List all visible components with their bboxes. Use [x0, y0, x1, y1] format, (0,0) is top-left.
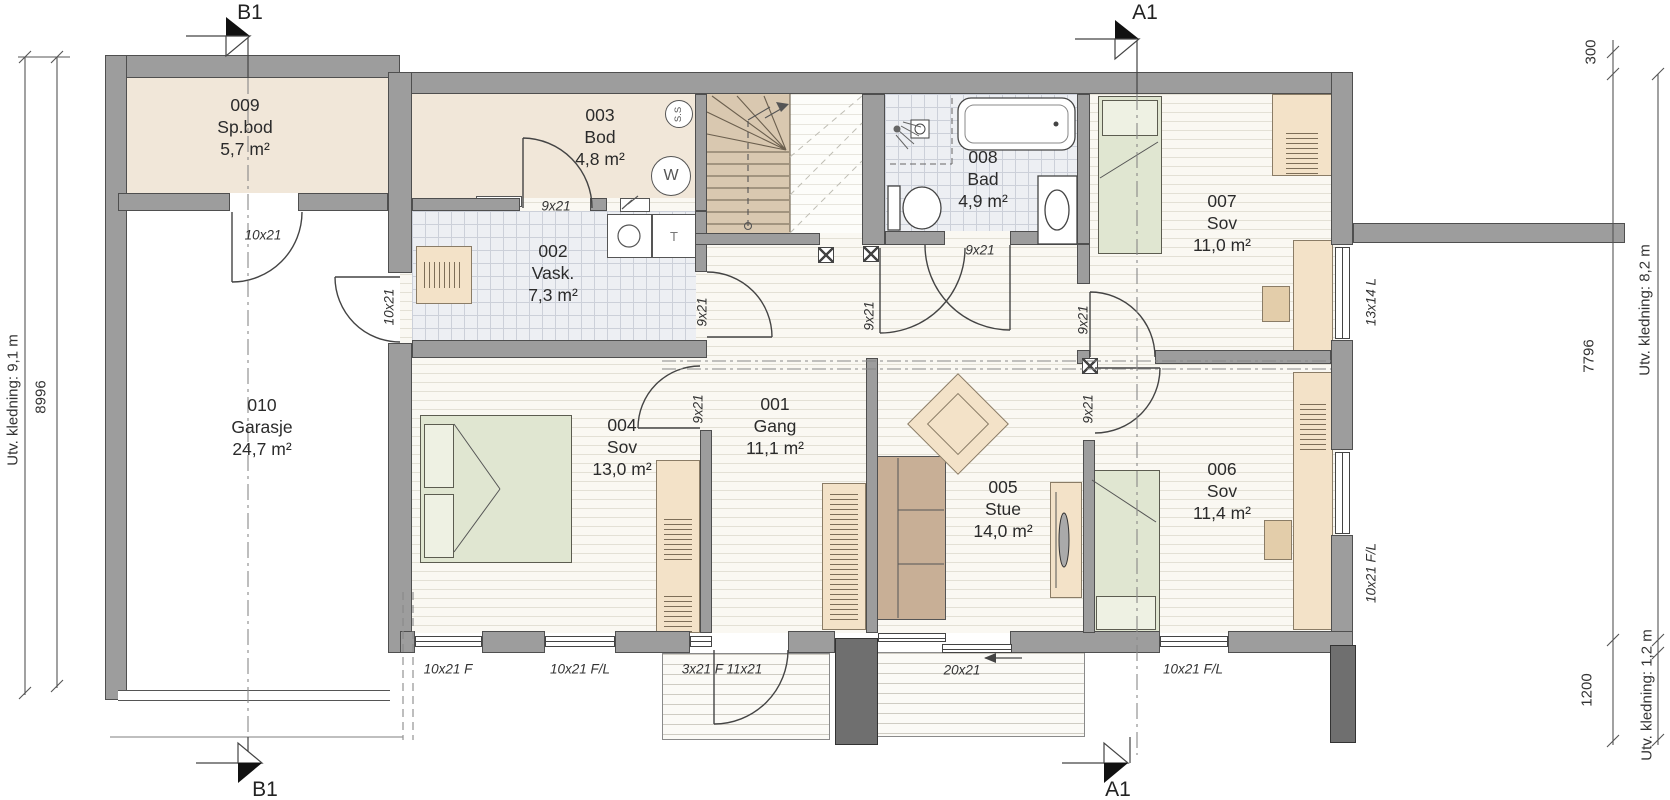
door-label-bod: 9x21 — [541, 199, 570, 213]
wall — [615, 631, 690, 653]
door-label-sov004: 9x21 — [691, 394, 705, 423]
wall — [1010, 631, 1160, 653]
wall — [862, 94, 885, 245]
room-label-006: 006Sov11,4 m² — [1193, 458, 1251, 524]
wall — [400, 631, 415, 653]
room-label-009: 009Sp.bod5,7 m² — [217, 94, 272, 160]
hot-water-tank-symbol: W — [651, 156, 691, 196]
window — [545, 636, 615, 647]
pillow — [1102, 100, 1158, 136]
wall — [1331, 72, 1353, 245]
window — [1335, 452, 1350, 534]
wall — [1077, 94, 1090, 244]
door-label-spbod: 10x21 — [245, 228, 282, 242]
tv-bench — [1050, 482, 1082, 598]
wardrobe-hatch — [664, 516, 692, 560]
window — [1160, 636, 1228, 647]
dim-right-bottom: 1200 — [1580, 673, 1595, 706]
wall — [388, 343, 412, 653]
garage-door — [118, 690, 390, 701]
pillow — [424, 494, 454, 558]
pillow — [424, 424, 454, 488]
desk-007 — [1293, 240, 1333, 355]
marker-b1-bottom: B1 — [252, 779, 278, 800]
dim-right-mid: 7796 — [1582, 339, 1597, 372]
wall — [298, 193, 388, 211]
wardrobe-hatch — [1286, 130, 1318, 174]
wall — [388, 72, 412, 273]
wardrobe-hatch — [664, 592, 692, 632]
deck-post — [1330, 645, 1356, 743]
window-label-fl-2: 10x21 F/L — [1163, 662, 1223, 676]
wall — [118, 193, 230, 211]
dim-left-inner: 8996 — [34, 380, 49, 413]
wall — [1155, 350, 1331, 364]
tumble-dryer: T — [652, 214, 696, 258]
room-label-008: 008Bad4,9 m² — [958, 146, 1008, 212]
dim-right-outer-bottom: Utv. kledning: 1,2 m — [1640, 629, 1655, 760]
dim-right-outer-mid: Utv. kledning: 8,2 m — [1638, 244, 1653, 375]
room-label-001: 001Gang11,1 m² — [746, 393, 804, 459]
wall — [1331, 340, 1353, 450]
window-label-13x14: 13x14 L — [1364, 278, 1378, 326]
stairs — [707, 94, 790, 233]
wall — [695, 233, 820, 245]
wall — [1353, 223, 1625, 243]
wall — [412, 340, 707, 358]
window — [942, 644, 1012, 653]
marker-a1-bottom: A1 — [1105, 779, 1131, 800]
room-label-007: 007Sov11,0 m² — [1193, 190, 1251, 256]
door-label-bad: 9x21 — [965, 243, 994, 257]
deck-post — [835, 638, 878, 745]
wall — [590, 198, 607, 211]
window — [690, 636, 712, 647]
sofa — [876, 456, 946, 620]
room-label-005: 005Stue14,0 m² — [973, 476, 1032, 542]
wardrobe-hatch — [1300, 404, 1326, 450]
window-label-right-fl: 10x21 F/L — [1364, 543, 1378, 603]
window — [415, 636, 482, 647]
floor-plan-canvas: T W S.S — [0, 0, 1670, 800]
marker-a1-top: A1 — [1132, 2, 1158, 23]
door-label-hall: 9x21 — [862, 301, 876, 330]
dim-right-top: 300 — [1584, 39, 1599, 64]
window — [878, 633, 946, 642]
door-label-vask: 9x21 — [695, 297, 709, 326]
window-label-f: 10x21 F — [424, 662, 473, 676]
wall — [695, 94, 707, 211]
pillow — [1096, 596, 1156, 630]
wall — [700, 430, 712, 633]
washing-machine — [607, 214, 652, 258]
cabinet-hatch — [424, 262, 464, 288]
post-marker — [818, 247, 834, 263]
window — [1335, 247, 1350, 339]
door-label-sov007: 9x21 — [1076, 305, 1090, 334]
wall — [105, 55, 127, 700]
wall — [388, 72, 1353, 94]
electrical-panel — [620, 198, 650, 212]
room-label-003: 003Bod4,8 m² — [575, 104, 625, 170]
room-label-002: 002Vask.7,3 m² — [528, 240, 578, 306]
dim-left-outer: Utv. kledning: 9,1 m — [6, 334, 21, 465]
chair-007 — [1262, 286, 1290, 322]
room-label-010: 010Garasje24,7 m² — [231, 394, 292, 460]
stair-landing-hatch — [790, 94, 862, 233]
chair-006 — [1264, 520, 1292, 560]
door-label-sov006: 9x21 — [1081, 394, 1095, 423]
post-marker — [1082, 358, 1098, 374]
wall — [1331, 535, 1353, 633]
marker-b1-top: B1 — [237, 2, 263, 23]
wardrobe-hatch — [830, 494, 858, 620]
wall — [788, 631, 835, 653]
door-label-garage-side: 10x21 — [382, 289, 396, 326]
door-label-sliding: 20x21 — [944, 663, 981, 677]
wall — [866, 358, 878, 633]
wall — [482, 631, 545, 653]
post-marker — [863, 246, 879, 262]
wall — [1010, 231, 1077, 245]
wall — [105, 55, 400, 78]
window-label-fl-1: 10x21 F/L — [550, 662, 610, 676]
central-vac-symbol: S.S — [665, 100, 693, 128]
wall — [1077, 244, 1090, 284]
door-label-entry: 3x21 F 11x21 — [682, 662, 763, 676]
wall — [885, 231, 945, 245]
room-label-004: 004Sov13,0 m² — [592, 414, 651, 480]
wall — [1083, 440, 1095, 633]
wall — [412, 198, 520, 211]
